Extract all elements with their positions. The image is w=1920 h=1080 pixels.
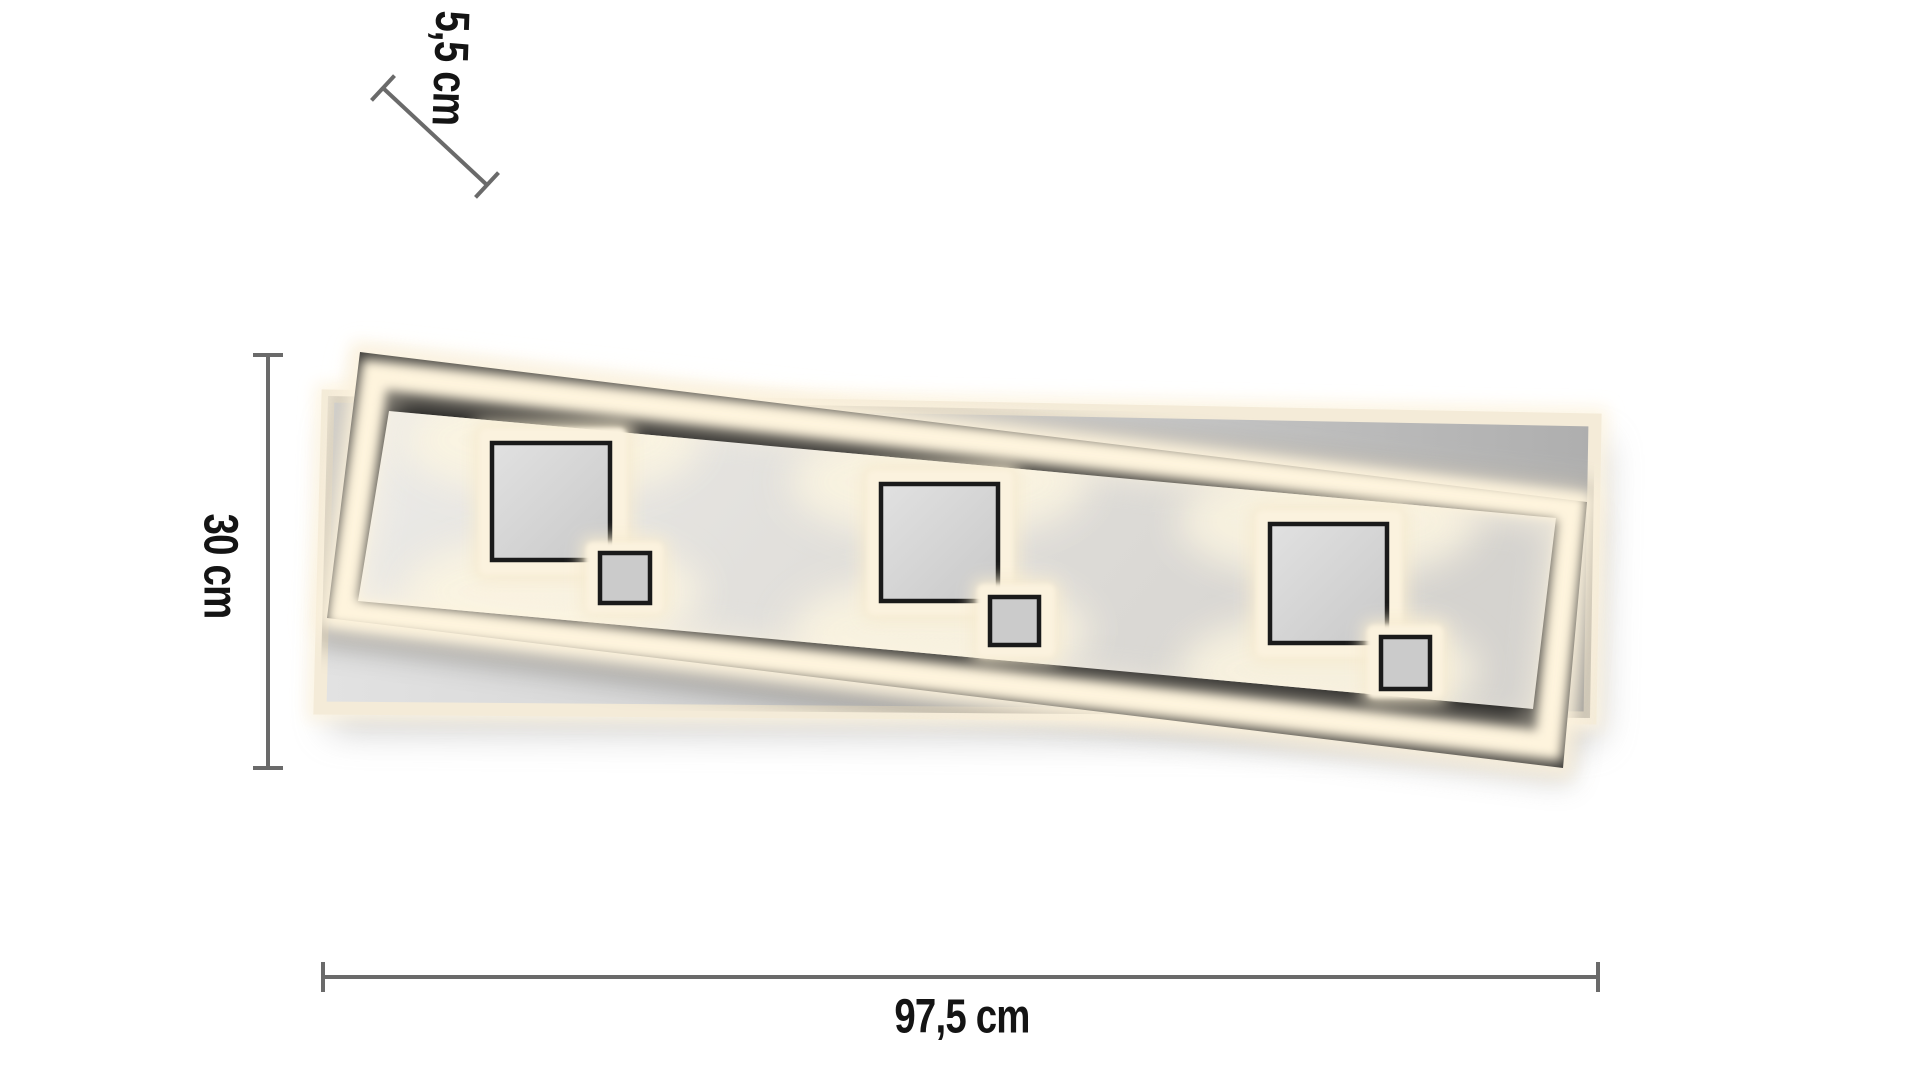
- module-3-small-square: [1381, 637, 1430, 689]
- width-dimension-label: 97,5 cm: [894, 990, 1029, 1045]
- ceiling-light-illustration: [0, 0, 1920, 1080]
- width-dimension-line: [323, 962, 1598, 992]
- height-dimension-line: [253, 355, 283, 768]
- module-1-small-square: [600, 553, 650, 603]
- product-dimension-diagram: 5,5 cm 30 cm 97,5 cm: [0, 0, 1920, 1080]
- height-dimension-label: 30 cm: [193, 514, 248, 619]
- module-2-small-square: [990, 597, 1039, 645]
- depth-dimension-label: 5,5 cm: [421, 10, 480, 127]
